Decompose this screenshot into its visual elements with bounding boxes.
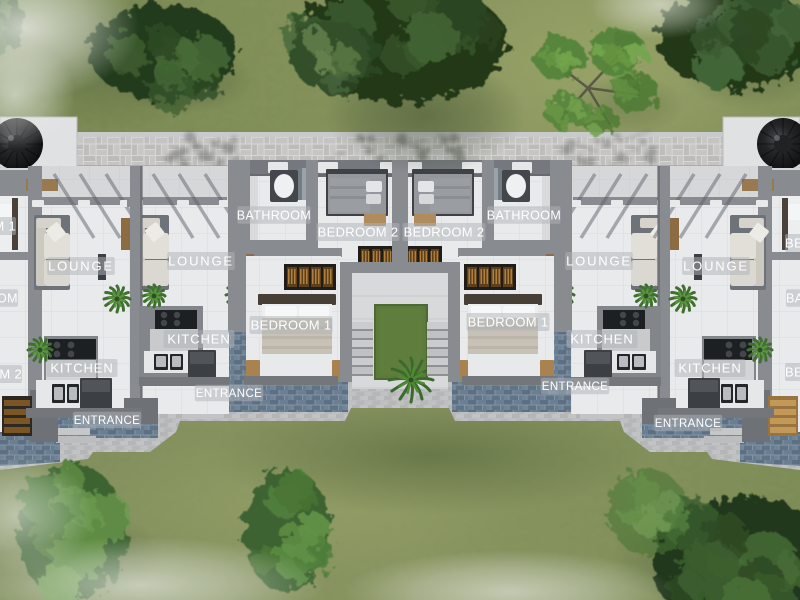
svg-text:ENTRANCE: ENTRANCE <box>74 415 140 427</box>
svg-text:BEDROOM 1: BEDROOM 1 <box>251 318 332 333</box>
svg-text:BATHROOM: BATHROOM <box>487 208 562 222</box>
svg-text:BATHROOM: BATHROOM <box>0 291 18 305</box>
svg-text:LOUNGE: LOUNGE <box>566 254 632 269</box>
svg-text:KITCHEN: KITCHEN <box>167 332 230 347</box>
svg-text:KITCHEN: KITCHEN <box>50 361 113 376</box>
svg-text:BEDROOM 2: BEDROOM 2 <box>0 367 22 382</box>
svg-text:BEDROOM 1: BEDROOM 1 <box>785 236 800 251</box>
svg-text:BEDROOM 2: BEDROOM 2 <box>404 225 485 240</box>
svg-text:LOUNGE: LOUNGE <box>683 259 749 274</box>
svg-text:BEDROOM 2: BEDROOM 2 <box>785 365 800 380</box>
svg-text:ENTRANCE: ENTRANCE <box>196 388 262 400</box>
svg-text:BEDROOM 1: BEDROOM 1 <box>468 315 549 330</box>
svg-text:ENTRANCE: ENTRANCE <box>542 381 608 393</box>
svg-text:BEDROOM 1: BEDROOM 1 <box>0 219 16 234</box>
svg-text:LOUNGE: LOUNGE <box>48 259 114 274</box>
svg-text:KITCHEN: KITCHEN <box>570 332 633 347</box>
svg-text:LOUNGE: LOUNGE <box>168 254 234 269</box>
svg-text:BATHROOM: BATHROOM <box>786 291 800 305</box>
svg-text:ENTRANCE: ENTRANCE <box>655 418 721 430</box>
svg-text:KITCHEN: KITCHEN <box>678 361 741 376</box>
svg-text:BEDROOM 2: BEDROOM 2 <box>318 225 399 240</box>
svg-text:BATHROOM: BATHROOM <box>237 208 312 222</box>
